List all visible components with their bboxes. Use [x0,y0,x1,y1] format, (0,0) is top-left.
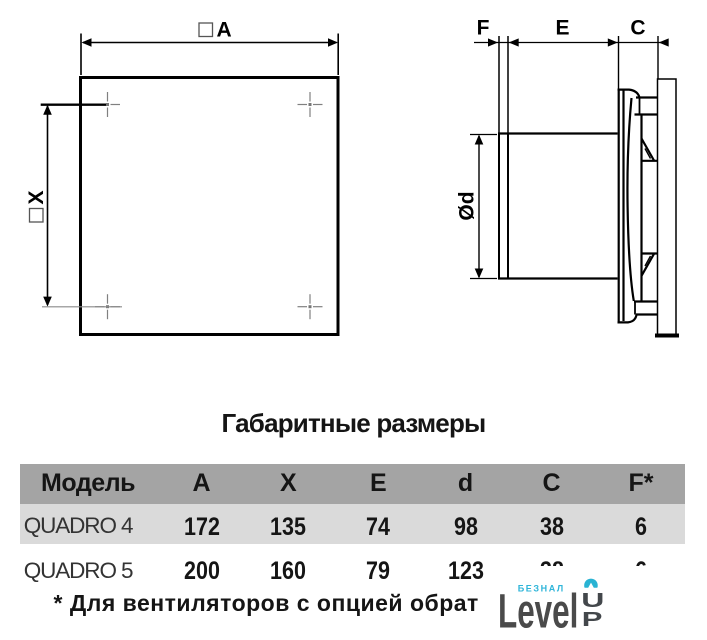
svg-text:F: F [477,17,490,40]
svg-text:C: C [630,17,645,40]
svg-text:E: E [555,17,569,40]
svg-text:Ød: Ød [456,191,479,220]
svg-text:A: A [217,19,232,42]
svg-text:X: X [25,190,48,204]
svg-text:P: P [582,607,603,630]
svg-text:БЕЗНАЛ: БЕЗНАЛ [518,584,565,594]
